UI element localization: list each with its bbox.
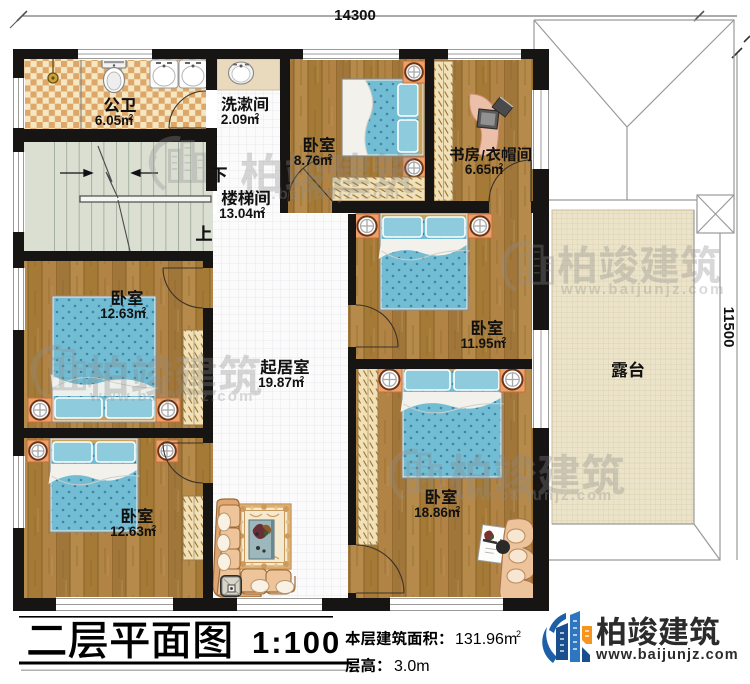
- svg-text:19.87m: 19.87m: [258, 375, 304, 390]
- svg-text:6.65m: 6.65m: [465, 162, 503, 177]
- svg-text:2: 2: [502, 336, 507, 345]
- svg-text:14300: 14300: [334, 7, 376, 24]
- svg-text:2: 2: [516, 629, 521, 639]
- svg-text:2: 2: [129, 113, 134, 122]
- svg-text:1:100: 1:100: [252, 625, 341, 660]
- svg-text:2: 2: [456, 505, 461, 514]
- svg-text:18.86m: 18.86m: [414, 505, 460, 520]
- svg-text:3.0m: 3.0m: [394, 658, 430, 675]
- svg-text:131.96m: 131.96m: [455, 631, 517, 648]
- svg-text:2: 2: [255, 112, 260, 121]
- svg-text:6.05m: 6.05m: [95, 113, 133, 128]
- svg-text:2: 2: [300, 375, 305, 384]
- svg-text:www.baijunjz.com: www.baijunjz.com: [560, 281, 726, 298]
- svg-text:11500: 11500: [720, 307, 737, 348]
- svg-text:/: /: [481, 147, 485, 163]
- svg-text:13.04m: 13.04m: [219, 206, 265, 221]
- svg-text:2: 2: [499, 162, 504, 171]
- svg-text:12.63m: 12.63m: [110, 524, 156, 539]
- svg-text:www.baijunjz.com: www.baijunjz.com: [89, 388, 255, 405]
- svg-text:2.09m: 2.09m: [221, 112, 259, 127]
- svg-text:8.76m: 8.76m: [294, 153, 332, 168]
- svg-text:2: 2: [328, 153, 333, 162]
- svg-text:www.baijunjz.com: www.baijunjz.com: [452, 488, 613, 504]
- svg-text:12.63m: 12.63m: [100, 306, 146, 321]
- svg-text:2: 2: [142, 306, 147, 315]
- svg-text:2: 2: [152, 524, 157, 533]
- svg-text:11.95m: 11.95m: [460, 336, 505, 351]
- svg-text:2: 2: [261, 206, 266, 215]
- svg-text:www.baijunjz.com: www.baijunjz.com: [595, 647, 739, 663]
